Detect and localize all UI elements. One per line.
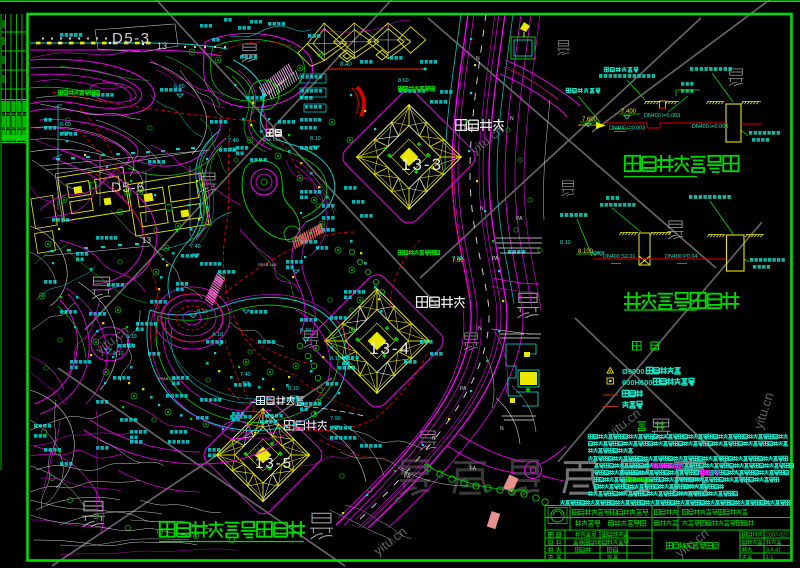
svg-text:1:1: 1:1 [766, 555, 773, 561]
svg-text:6.80: 6.80 [174, 84, 185, 90]
svg-text:PA: PA [404, 474, 411, 480]
svg-text:8.40: 8.40 [340, 62, 352, 68]
svg-text:8.60: 8.60 [60, 122, 71, 128]
svg-text:PA: PA [492, 256, 499, 262]
svg-text:PA: PA [516, 216, 523, 222]
svg-text:N: N [432, 436, 436, 442]
svg-text:13: 13 [157, 41, 167, 51]
svg-text:8.10: 8.10 [288, 386, 299, 392]
svg-text:B.10: B.10 [300, 328, 311, 334]
svg-text:8.10: 8.10 [560, 240, 571, 246]
svg-text:DN400 i=0.003: DN400 i=0.003 [692, 124, 728, 130]
svg-text:DN400 S2.01: DN400 S2.01 [603, 254, 635, 260]
svg-text:8.60: 8.60 [398, 78, 409, 84]
svg-text:N: N [510, 116, 514, 122]
svg-text:2007-027: 2007-027 [766, 533, 788, 539]
svg-text:DN400 P0.04: DN400 P0.04 [665, 254, 697, 260]
svg-text:8.10: 8.10 [197, 309, 208, 315]
svg-text:N: N [478, 326, 482, 332]
svg-text:N: N [500, 426, 504, 432]
svg-text:FA: FA [470, 466, 477, 472]
svg-text:13-4: 13-4 [369, 339, 411, 358]
svg-text:8.10: 8.10 [310, 136, 321, 142]
svg-text:PA: PA [464, 126, 471, 132]
svg-text:3-8-41: 3-8-41 [766, 548, 781, 554]
svg-text:DN400 i=0.003: DN400 i=0.003 [644, 113, 680, 119]
svg-text:DN400 i=0.003: DN400 i=0.003 [609, 126, 645, 132]
svg-text:8.10: 8.10 [113, 351, 124, 357]
svg-text:Ø9000: Ø9000 [622, 367, 645, 376]
svg-text:7.40: 7.40 [228, 138, 239, 144]
svg-text:8.10: 8.10 [330, 356, 341, 362]
svg-text:13-5: 13-5 [255, 455, 293, 472]
svg-text:7.40: 7.40 [240, 372, 251, 378]
svg-text:7.40: 7.40 [190, 244, 201, 250]
svg-text:7.90: 7.90 [452, 258, 464, 264]
svg-text:PA: PA [460, 386, 467, 392]
svg-text:7.90: 7.90 [330, 416, 341, 422]
svg-text:D5-3: D5-3 [112, 30, 151, 47]
svg-text:N: N [476, 56, 480, 62]
svg-text:600H600: 600H600 [622, 378, 652, 387]
svg-text:N: N [480, 206, 484, 212]
svg-text:13-3: 13-3 [401, 155, 443, 174]
